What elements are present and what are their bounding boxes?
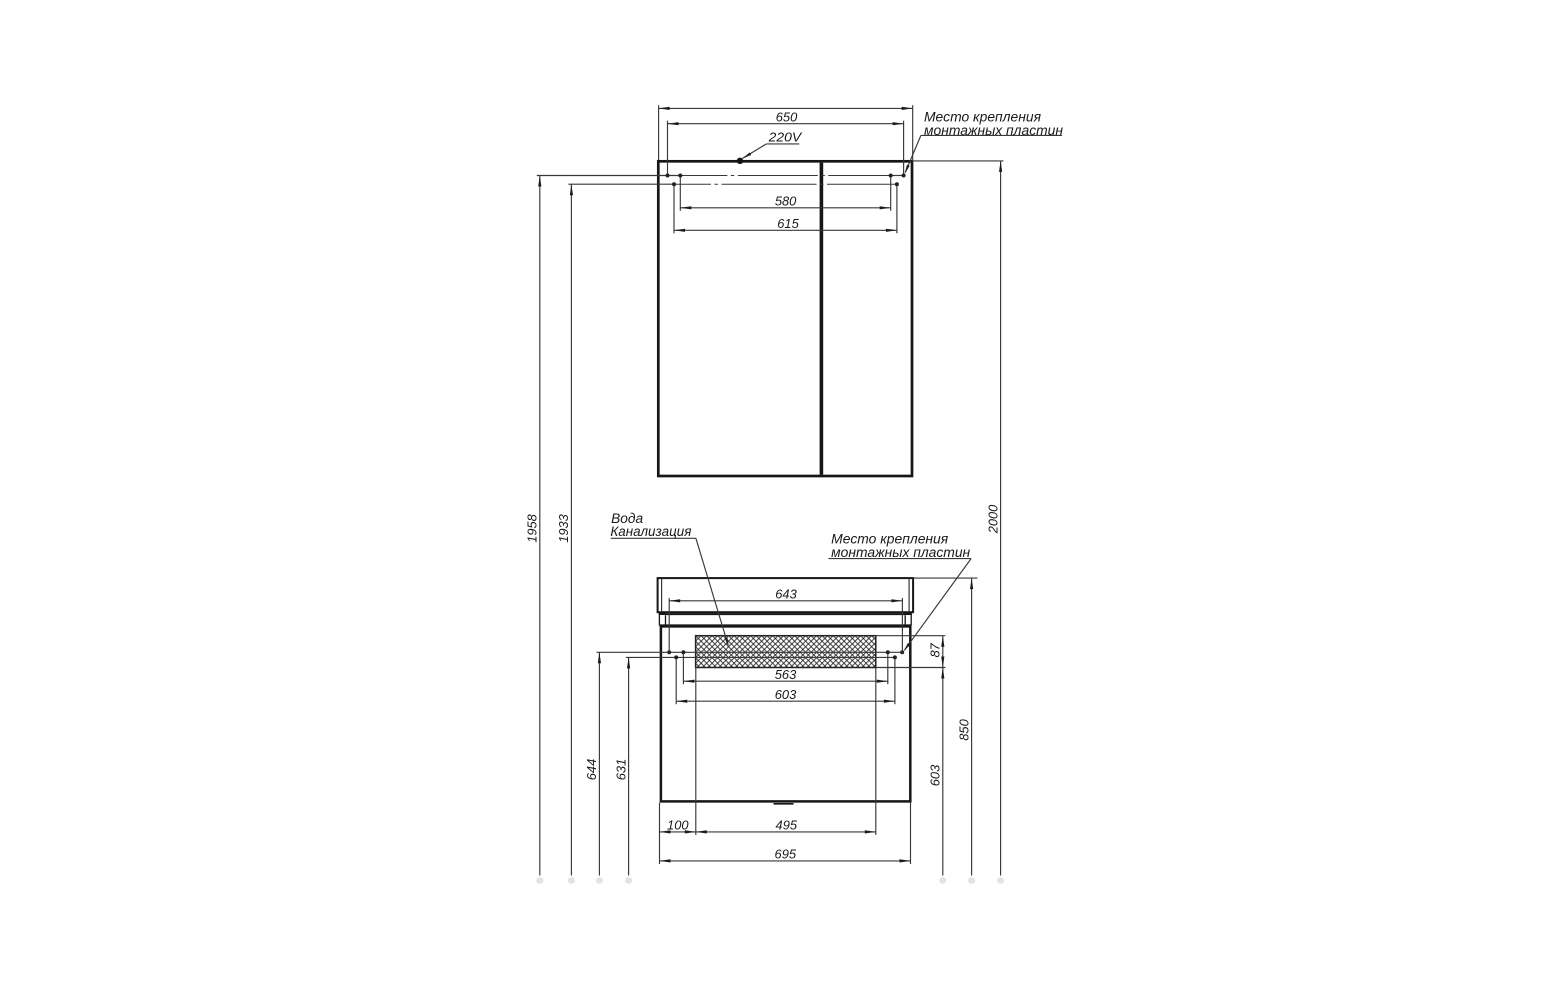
svg-text:603: 603 bbox=[928, 764, 943, 786]
svg-text:615: 615 bbox=[777, 216, 799, 231]
svg-text:850: 850 bbox=[956, 719, 971, 741]
svg-text:650: 650 bbox=[776, 109, 798, 124]
svg-text:2000: 2000 bbox=[985, 504, 1000, 534]
svg-text:1933: 1933 bbox=[556, 513, 571, 542]
svg-text:Канализация: Канализация bbox=[610, 524, 691, 539]
svg-text:87: 87 bbox=[928, 642, 943, 657]
svg-text:220V: 220V bbox=[768, 129, 803, 144]
svg-text:580: 580 bbox=[775, 194, 797, 209]
svg-text:1958: 1958 bbox=[525, 513, 540, 542]
svg-text:100: 100 bbox=[667, 818, 689, 833]
svg-text:603: 603 bbox=[775, 687, 797, 702]
svg-text:495: 495 bbox=[776, 818, 798, 833]
svg-text:644: 644 bbox=[584, 759, 599, 781]
svg-text:695: 695 bbox=[775, 847, 797, 862]
svg-text:монтажных пластин: монтажных пластин bbox=[831, 545, 971, 560]
svg-text:631: 631 bbox=[613, 759, 628, 781]
svg-text:563: 563 bbox=[775, 667, 797, 682]
svg-text:643: 643 bbox=[775, 587, 797, 602]
